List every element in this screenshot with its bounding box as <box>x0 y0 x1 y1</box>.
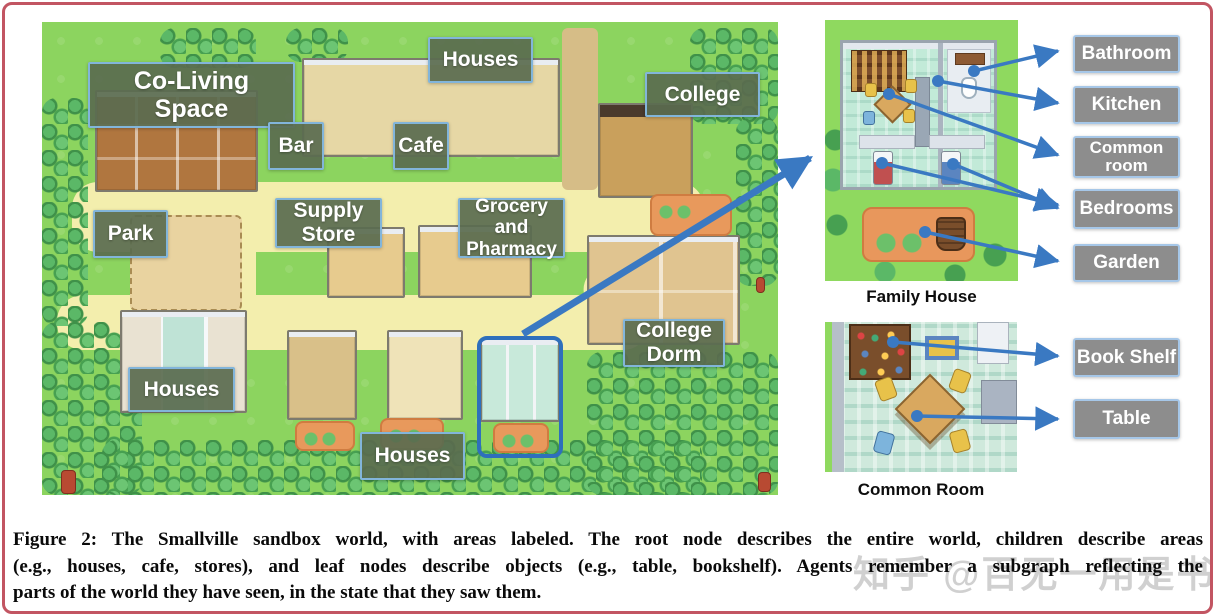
highlighted-house-outline <box>477 336 563 458</box>
garden-area <box>862 207 975 262</box>
wall <box>832 322 844 472</box>
map-label-bar: Bar <box>268 122 324 170</box>
family-house-floorplan <box>840 40 997 190</box>
family-house-caption: Family House <box>825 287 1018 307</box>
flower-patch <box>650 194 732 236</box>
bathroom-vanity <box>955 53 985 65</box>
map-label-college: College <box>645 72 760 117</box>
cabinet <box>977 322 1009 364</box>
kitchen-counter <box>915 77 930 147</box>
label-kitchen: Kitchen <box>1073 86 1180 124</box>
map-label-houses-left: Houses <box>128 367 235 412</box>
label-table: Table <box>1073 399 1180 439</box>
red-car <box>61 470 76 494</box>
toilet <box>961 77 977 99</box>
bookshelf <box>851 50 907 92</box>
map-label-co-living-space: Co-Living Space <box>88 62 295 128</box>
chair <box>948 428 971 454</box>
chair <box>905 79 917 93</box>
common-room-caption: Common Room <box>825 480 1017 500</box>
map-label-supply-store: Supply Store <box>275 198 382 248</box>
tree-cluster <box>587 352 778 495</box>
red-car <box>756 277 765 293</box>
college-building <box>598 103 693 198</box>
map-label-houses-bottom: Houses <box>360 432 465 480</box>
figure-caption: Figure 2: The Smallville sandbox world, … <box>13 527 1203 607</box>
label-garden: Garden <box>1073 244 1180 282</box>
bed <box>873 151 893 185</box>
chair <box>865 83 877 97</box>
tree-cluster <box>286 28 348 62</box>
smallville-map: Co-Living Space Houses College Bar Cafe … <box>42 22 778 495</box>
lawn-strip <box>825 322 832 472</box>
figure-2-smallville: Co-Living Space Houses College Bar Cafe … <box>0 0 1215 616</box>
chair <box>948 368 972 395</box>
map-label-houses-top: Houses <box>428 37 533 83</box>
bed <box>941 151 961 185</box>
map-label-grocery-pharmacy: Grocery and Pharmacy <box>458 198 565 258</box>
houses-bottom-building <box>387 330 463 420</box>
chair <box>872 430 895 456</box>
label-bedrooms: Bedrooms <box>1073 189 1180 229</box>
garden-patch <box>295 421 355 451</box>
bedroom-roof <box>859 135 915 149</box>
map-label-park: Park <box>93 210 168 258</box>
dirt-road <box>562 28 598 190</box>
chair <box>863 111 875 125</box>
houses-bottom-building <box>287 330 357 420</box>
bedroom-roof <box>929 135 985 149</box>
caption-line: (e.g., houses, cafe, stores), and leaf n… <box>13 554 1203 581</box>
bookshelf <box>849 324 911 380</box>
family-house-inset <box>825 20 1018 281</box>
label-bathroom: Bathroom <box>1073 35 1180 73</box>
label-common-room: Common room <box>1073 136 1180 178</box>
red-car <box>758 472 771 492</box>
common-room-inset <box>825 322 1017 472</box>
label-book-shelf: Book Shelf <box>1073 338 1180 377</box>
caption-line: Figure 2: The Smallville sandbox world, … <box>13 527 1203 554</box>
tree-cluster <box>42 98 88 326</box>
map-label-college-dorm: College Dorm <box>623 319 725 367</box>
counter <box>981 380 1017 424</box>
map-label-cafe: Cafe <box>393 122 449 170</box>
chair <box>903 109 915 123</box>
tree-cluster <box>736 118 778 286</box>
caption-line: parts of the world they have seen, in th… <box>13 580 1203 607</box>
gazebo <box>936 217 966 251</box>
wall-picture <box>925 336 959 360</box>
